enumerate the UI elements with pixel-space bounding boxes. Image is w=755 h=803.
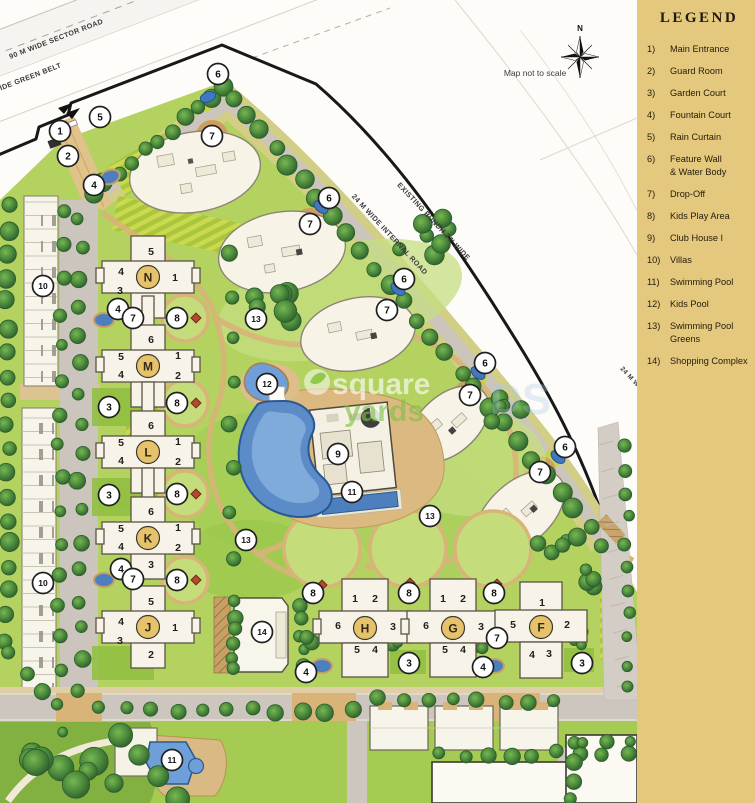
tree-icon bbox=[409, 314, 424, 329]
marker-number: 7 bbox=[467, 391, 473, 402]
marker-6: 6 bbox=[208, 64, 229, 85]
wing-number: 5 bbox=[510, 619, 516, 631]
tree-icon bbox=[226, 91, 242, 107]
tree-icon bbox=[530, 536, 546, 552]
marker-7: 7 bbox=[202, 126, 223, 147]
marker-number: 2 bbox=[65, 152, 71, 163]
tree-icon bbox=[345, 701, 361, 717]
tree-icon bbox=[436, 344, 453, 361]
wing-number: 5 bbox=[118, 437, 124, 449]
tree-icon bbox=[625, 736, 635, 746]
tower-letter: L bbox=[144, 446, 151, 460]
legend-title: LEGEND bbox=[647, 10, 751, 27]
tree-icon bbox=[51, 699, 63, 711]
tree-icon bbox=[296, 170, 315, 189]
marker-number: 7 bbox=[209, 132, 215, 143]
marker-number: 8 bbox=[310, 589, 316, 600]
tree-icon bbox=[549, 744, 563, 758]
tree-icon bbox=[622, 681, 633, 692]
legend-item: 1)Main Entrance bbox=[647, 43, 751, 56]
legend-item-label: Swimming Pool bbox=[670, 276, 751, 289]
wing-number: 1 bbox=[172, 272, 178, 284]
tree-icon bbox=[594, 539, 608, 553]
tree-icon bbox=[23, 749, 49, 775]
tower-letter: F bbox=[537, 621, 544, 635]
marker-11: 11 bbox=[162, 750, 183, 771]
legend-item-number: 2) bbox=[647, 65, 662, 78]
wing-number: 6 bbox=[148, 334, 154, 346]
wing-number: 2 bbox=[564, 619, 570, 631]
marker-number: 6 bbox=[482, 359, 488, 370]
marker-number: 4 bbox=[480, 663, 486, 674]
marker-number: 11 bbox=[168, 755, 177, 765]
legend-item-label: Villas bbox=[670, 254, 751, 267]
tree-icon bbox=[34, 683, 50, 699]
wing-number: 3 bbox=[117, 285, 123, 297]
compass-north-label: N bbox=[577, 24, 583, 33]
marker-8: 8 bbox=[167, 393, 188, 414]
wing-number: 1 bbox=[352, 593, 358, 605]
tree-icon bbox=[227, 552, 241, 566]
legend-item-number: 4) bbox=[647, 109, 662, 122]
legend-items: 1)Main Entrance2)Guard Room3)Garden Cour… bbox=[647, 43, 751, 368]
marker-6: 6 bbox=[475, 353, 496, 374]
marker-number: 4 bbox=[303, 668, 309, 679]
wing-number: 1 bbox=[175, 522, 181, 534]
legend-item: 4)Fountain Court bbox=[647, 109, 751, 122]
wing-number: 2 bbox=[372, 593, 378, 605]
tree-icon bbox=[277, 155, 297, 175]
tree-icon bbox=[447, 693, 459, 705]
marker-number: 8 bbox=[174, 576, 180, 587]
tree-icon bbox=[221, 245, 237, 261]
tree-icon bbox=[76, 446, 90, 460]
tree-icon bbox=[618, 538, 631, 551]
tree-icon bbox=[53, 629, 67, 643]
tree-icon bbox=[577, 737, 588, 748]
legend-item: 3)Garden Court bbox=[647, 87, 751, 100]
tree-icon bbox=[223, 506, 236, 519]
legend-item-number: 11) bbox=[647, 276, 662, 289]
legend-item-number: 7) bbox=[647, 188, 662, 201]
tree-icon bbox=[165, 125, 180, 140]
tree-icon bbox=[0, 270, 16, 289]
tree-icon bbox=[75, 621, 87, 633]
tree-icon bbox=[151, 135, 164, 148]
tree-icon bbox=[72, 562, 86, 576]
marker-number: 7 bbox=[537, 468, 543, 479]
wing-number: 5 bbox=[442, 644, 448, 656]
tower-letter: J bbox=[145, 621, 152, 635]
wing-number: 1 bbox=[172, 622, 178, 634]
wing-number: 5 bbox=[354, 644, 360, 656]
tree-icon bbox=[568, 528, 586, 546]
marker-6: 6 bbox=[394, 269, 415, 290]
wing-number: 4 bbox=[460, 644, 466, 656]
tree-icon bbox=[460, 751, 472, 763]
tree-icon bbox=[129, 745, 150, 766]
wing-number: 5 bbox=[148, 596, 154, 608]
legend-item-number: 8) bbox=[647, 210, 662, 223]
marker-3: 3 bbox=[399, 653, 420, 674]
marker-1: 1 bbox=[50, 121, 71, 142]
tree-icon bbox=[566, 754, 583, 771]
tree-icon bbox=[621, 561, 633, 573]
wing-number: 6 bbox=[148, 420, 154, 432]
tree-icon bbox=[139, 142, 152, 155]
marker-11: 11 bbox=[342, 482, 363, 503]
tree-icon bbox=[71, 271, 87, 287]
marker-3: 3 bbox=[99, 397, 120, 418]
marker-8: 8 bbox=[484, 583, 505, 604]
tree-icon bbox=[51, 438, 63, 450]
legend-item-label: Kids Pool bbox=[670, 298, 751, 311]
tree-icon bbox=[56, 539, 68, 551]
tree-icon bbox=[108, 723, 132, 747]
tree-icon bbox=[57, 271, 71, 285]
marker-7: 7 bbox=[487, 628, 508, 649]
tree-icon bbox=[397, 694, 410, 707]
tree-icon bbox=[58, 727, 68, 737]
tree-icon bbox=[74, 535, 90, 551]
tree-icon bbox=[177, 108, 194, 125]
marker-8: 8 bbox=[167, 308, 188, 329]
marker-9: 9 bbox=[328, 444, 349, 465]
tree-icon bbox=[69, 472, 86, 489]
marker-number: 3 bbox=[106, 491, 112, 502]
tree-icon bbox=[74, 651, 91, 668]
tree-icon bbox=[71, 684, 84, 697]
wing-number: 1 bbox=[175, 436, 181, 448]
legend-item-number: 3) bbox=[647, 87, 662, 100]
wing-number: 2 bbox=[460, 593, 466, 605]
tree-icon bbox=[622, 632, 632, 642]
marker-number: 11 bbox=[348, 487, 357, 497]
marker-number: 7 bbox=[307, 220, 313, 231]
tree-icon bbox=[121, 702, 133, 714]
marker-8: 8 bbox=[167, 484, 188, 505]
tree-icon bbox=[0, 370, 15, 385]
marker-number: 8 bbox=[174, 399, 180, 410]
tree-icon bbox=[228, 376, 240, 388]
marker-number: 1 bbox=[57, 127, 63, 138]
tree-icon bbox=[62, 771, 89, 798]
legend-item: 8)Kids Play Area bbox=[647, 210, 751, 223]
wing-number: 3 bbox=[478, 621, 484, 633]
tree-icon bbox=[1, 393, 16, 408]
wing-number: 4 bbox=[118, 616, 124, 628]
marker-2: 2 bbox=[58, 146, 79, 167]
tree-icon bbox=[499, 696, 513, 710]
legend-item-label: Fountain Court bbox=[670, 109, 751, 122]
marker-3: 3 bbox=[99, 485, 120, 506]
tree-icon bbox=[477, 642, 488, 653]
wing-number: 4 bbox=[118, 369, 124, 381]
tree-icon bbox=[316, 704, 334, 722]
tree-icon bbox=[53, 309, 66, 322]
tree-icon bbox=[228, 595, 240, 607]
tree-icon bbox=[226, 637, 239, 650]
tree-icon bbox=[0, 417, 13, 433]
tree-icon bbox=[56, 470, 71, 485]
wing-number: 1 bbox=[440, 593, 446, 605]
marker-number: 13 bbox=[251, 314, 261, 324]
marker-5: 5 bbox=[90, 107, 111, 128]
tree-icon bbox=[580, 564, 592, 576]
tree-icon bbox=[622, 661, 632, 671]
marker-number: 6 bbox=[562, 443, 568, 454]
tree-icon bbox=[564, 793, 576, 803]
tree-icon bbox=[226, 460, 241, 475]
marker-number: 10 bbox=[38, 578, 48, 588]
tree-icon bbox=[76, 241, 89, 254]
marker-number: 8 bbox=[406, 589, 412, 600]
marker-3: 3 bbox=[572, 653, 593, 674]
wing-number: 6 bbox=[148, 506, 154, 518]
tree-icon bbox=[622, 585, 634, 597]
marker-number: 7 bbox=[130, 575, 136, 586]
marker-number: 3 bbox=[579, 659, 585, 670]
tree-icon bbox=[0, 581, 17, 598]
marker-14: 14 bbox=[252, 622, 273, 643]
legend-item: 10)Villas bbox=[647, 254, 751, 267]
marker-7: 7 bbox=[123, 308, 144, 329]
tree-icon bbox=[563, 498, 583, 518]
tree-icon bbox=[55, 664, 68, 677]
legend-item-label: Main Entrance bbox=[670, 43, 751, 56]
marker-number: 8 bbox=[174, 490, 180, 501]
tree-icon bbox=[0, 245, 16, 263]
wing-number: 3 bbox=[148, 559, 154, 571]
marker-number: 4 bbox=[115, 305, 121, 316]
marker-number: 12 bbox=[262, 379, 272, 389]
legend-item-label: Guard Room bbox=[670, 65, 751, 78]
tree-icon bbox=[70, 328, 86, 344]
marker-4: 4 bbox=[296, 662, 317, 683]
tree-icon bbox=[55, 375, 68, 388]
tree-icon bbox=[504, 748, 521, 765]
wing-number: 5 bbox=[118, 351, 124, 363]
marker-number: 9 bbox=[335, 450, 341, 461]
tree-icon bbox=[55, 506, 66, 517]
tree-icon bbox=[52, 568, 66, 582]
legend-item-label: Swimming PoolGreens bbox=[670, 320, 751, 346]
legend-item-label: Feature Wall& Water Body bbox=[670, 153, 751, 179]
tree-icon bbox=[125, 157, 139, 171]
tree-icon bbox=[0, 606, 14, 622]
tree-icon bbox=[619, 465, 632, 478]
tree-icon bbox=[0, 532, 19, 551]
wing-number: 4 bbox=[372, 644, 378, 656]
marker-6: 6 bbox=[319, 188, 340, 209]
marker-13: 13 bbox=[246, 309, 267, 330]
legend-item: 7)Drop-Off bbox=[647, 188, 751, 201]
tree-icon bbox=[547, 694, 559, 706]
tree-icon bbox=[197, 704, 209, 716]
tree-icon bbox=[624, 510, 635, 521]
marker-number: 10 bbox=[38, 281, 48, 291]
tree-icon bbox=[267, 705, 283, 721]
tree-icon bbox=[246, 701, 260, 715]
marker-7: 7 bbox=[460, 385, 481, 406]
tree-icon bbox=[1, 560, 16, 575]
marker-4: 4 bbox=[84, 175, 105, 196]
tree-icon bbox=[566, 774, 582, 790]
legend-item-label: Kids Play Area bbox=[670, 210, 751, 223]
wing-number: 2 bbox=[148, 649, 154, 661]
marker-7: 7 bbox=[377, 300, 398, 321]
legend-item-label: Rain Curtain bbox=[670, 131, 751, 144]
watermark-word2: yards bbox=[344, 395, 424, 428]
marker-7: 7 bbox=[530, 462, 551, 483]
legend-item-label: Club House I bbox=[670, 232, 751, 245]
tree-icon bbox=[624, 607, 636, 619]
tree-icon bbox=[0, 344, 15, 360]
tree-icon bbox=[21, 667, 35, 681]
marker-number: 6 bbox=[326, 194, 332, 205]
tree-icon bbox=[2, 646, 15, 659]
marker-number: 6 bbox=[401, 275, 407, 286]
legend-item: 9)Club House I bbox=[647, 232, 751, 245]
wing-number: 2 bbox=[175, 456, 181, 468]
tree-icon bbox=[250, 120, 268, 138]
marker-number: 4 bbox=[91, 181, 97, 192]
legend-item: 5)Rain Curtain bbox=[647, 131, 751, 144]
wing-number: 4 bbox=[118, 455, 124, 467]
tree-icon bbox=[525, 749, 539, 763]
tree-icon bbox=[509, 432, 528, 451]
legend-item-label: Garden Court bbox=[670, 87, 751, 100]
shopping-complex bbox=[214, 597, 288, 673]
legend-item: 11)Swimming Pool bbox=[647, 276, 751, 289]
tree-icon bbox=[57, 237, 71, 251]
tree-icon bbox=[295, 612, 309, 626]
tree-icon bbox=[2, 197, 17, 212]
marker-number: 3 bbox=[406, 659, 412, 670]
tree-icon bbox=[469, 692, 484, 707]
legend-item: 14)Shopping Complex bbox=[647, 355, 751, 368]
tree-icon bbox=[71, 213, 83, 225]
tower-letter: N bbox=[144, 271, 153, 285]
tree-icon bbox=[228, 622, 241, 635]
tree-icon bbox=[521, 695, 537, 711]
site-plan-page: N54132M651423L651423K651423J54132H126354… bbox=[0, 0, 755, 803]
marker-12: 12 bbox=[257, 374, 278, 395]
spa-pool bbox=[189, 759, 204, 774]
legend-item-label: Drop-Off bbox=[670, 188, 751, 201]
tree-icon bbox=[76, 503, 88, 515]
tree-icon bbox=[584, 519, 599, 534]
tree-icon bbox=[595, 748, 609, 762]
marker-number: 14 bbox=[257, 627, 267, 637]
marker-13: 13 bbox=[420, 506, 441, 527]
legend-item: 2)Guard Room bbox=[647, 65, 751, 78]
legend-item-number: 14) bbox=[647, 355, 662, 368]
legend-panel: LEGEND 1)Main Entrance2)Guard Room3)Gard… bbox=[637, 0, 755, 803]
wing-number: 1 bbox=[539, 597, 545, 609]
tree-icon bbox=[56, 339, 67, 350]
tower-letter: H bbox=[361, 622, 370, 636]
tree-icon bbox=[58, 205, 71, 218]
watermark-word3: DS bbox=[490, 375, 551, 424]
tree-icon bbox=[53, 408, 67, 422]
tree-icon bbox=[481, 748, 496, 763]
legend-item: 6)Feature Wall& Water Body bbox=[647, 153, 751, 179]
wing-number: 3 bbox=[546, 648, 552, 660]
marker-number: 5 bbox=[97, 113, 103, 124]
tree-icon bbox=[227, 332, 239, 344]
tree-icon bbox=[221, 416, 237, 432]
legend-item: 13)Swimming PoolGreens bbox=[647, 320, 751, 346]
marker-number: 6 bbox=[215, 70, 221, 81]
tree-icon bbox=[0, 463, 15, 481]
marker-number: 3 bbox=[106, 403, 112, 414]
legend-item-number: 9) bbox=[647, 232, 662, 245]
marker-13: 13 bbox=[236, 530, 257, 551]
marker-7: 7 bbox=[123, 569, 144, 590]
tree-icon bbox=[72, 596, 85, 609]
tree-icon bbox=[76, 418, 88, 430]
legend-item-number: 13) bbox=[647, 320, 662, 346]
tree-icon bbox=[73, 355, 89, 371]
tree-icon bbox=[367, 263, 381, 277]
tree-icon bbox=[422, 329, 438, 345]
tree-icon bbox=[3, 442, 17, 456]
tree-icon bbox=[433, 747, 445, 759]
tree-icon bbox=[0, 320, 18, 338]
wing-number: 4 bbox=[118, 541, 124, 553]
legend-item-number: 10) bbox=[647, 254, 662, 267]
tree-icon bbox=[456, 366, 471, 381]
wing-number: 1 bbox=[175, 350, 181, 362]
tree-icon bbox=[227, 662, 240, 675]
marker-number: 7 bbox=[130, 314, 136, 325]
marker-8: 8 bbox=[167, 570, 188, 591]
marker-8: 8 bbox=[303, 583, 324, 604]
tree-icon bbox=[300, 630, 314, 644]
legend-item-number: 12) bbox=[647, 298, 662, 311]
tree-icon bbox=[219, 702, 233, 716]
wing-number: 4 bbox=[529, 649, 535, 661]
wing-number: 6 bbox=[335, 620, 341, 632]
tree-icon bbox=[619, 488, 632, 501]
tree-icon bbox=[422, 693, 436, 707]
tree-icon bbox=[105, 774, 123, 792]
marker-10: 10 bbox=[33, 573, 54, 594]
tree-icon bbox=[351, 242, 368, 259]
marker-10: 10 bbox=[33, 276, 54, 297]
tree-icon bbox=[226, 291, 239, 304]
marker-number: 8 bbox=[174, 314, 180, 325]
tree-icon bbox=[555, 538, 569, 552]
legend-item-label: Shopping Complex bbox=[670, 355, 751, 368]
wing-number: 3 bbox=[390, 621, 396, 633]
tree-icon bbox=[370, 690, 386, 706]
tower-letter: K bbox=[144, 532, 153, 546]
tree-icon bbox=[143, 702, 157, 716]
tree-icon bbox=[618, 439, 631, 452]
marker-number: 13 bbox=[241, 535, 251, 545]
wing-number: 2 bbox=[175, 370, 181, 382]
tree-icon bbox=[0, 291, 14, 309]
tree-icon bbox=[270, 141, 285, 156]
wing-number: 4 bbox=[118, 266, 124, 278]
legend-item-number: 5) bbox=[647, 131, 662, 144]
fountain bbox=[94, 573, 114, 587]
wing-number: 6 bbox=[423, 620, 429, 632]
marker-number: 7 bbox=[384, 306, 390, 317]
legend-item: 12)Kids Pool bbox=[647, 298, 751, 311]
